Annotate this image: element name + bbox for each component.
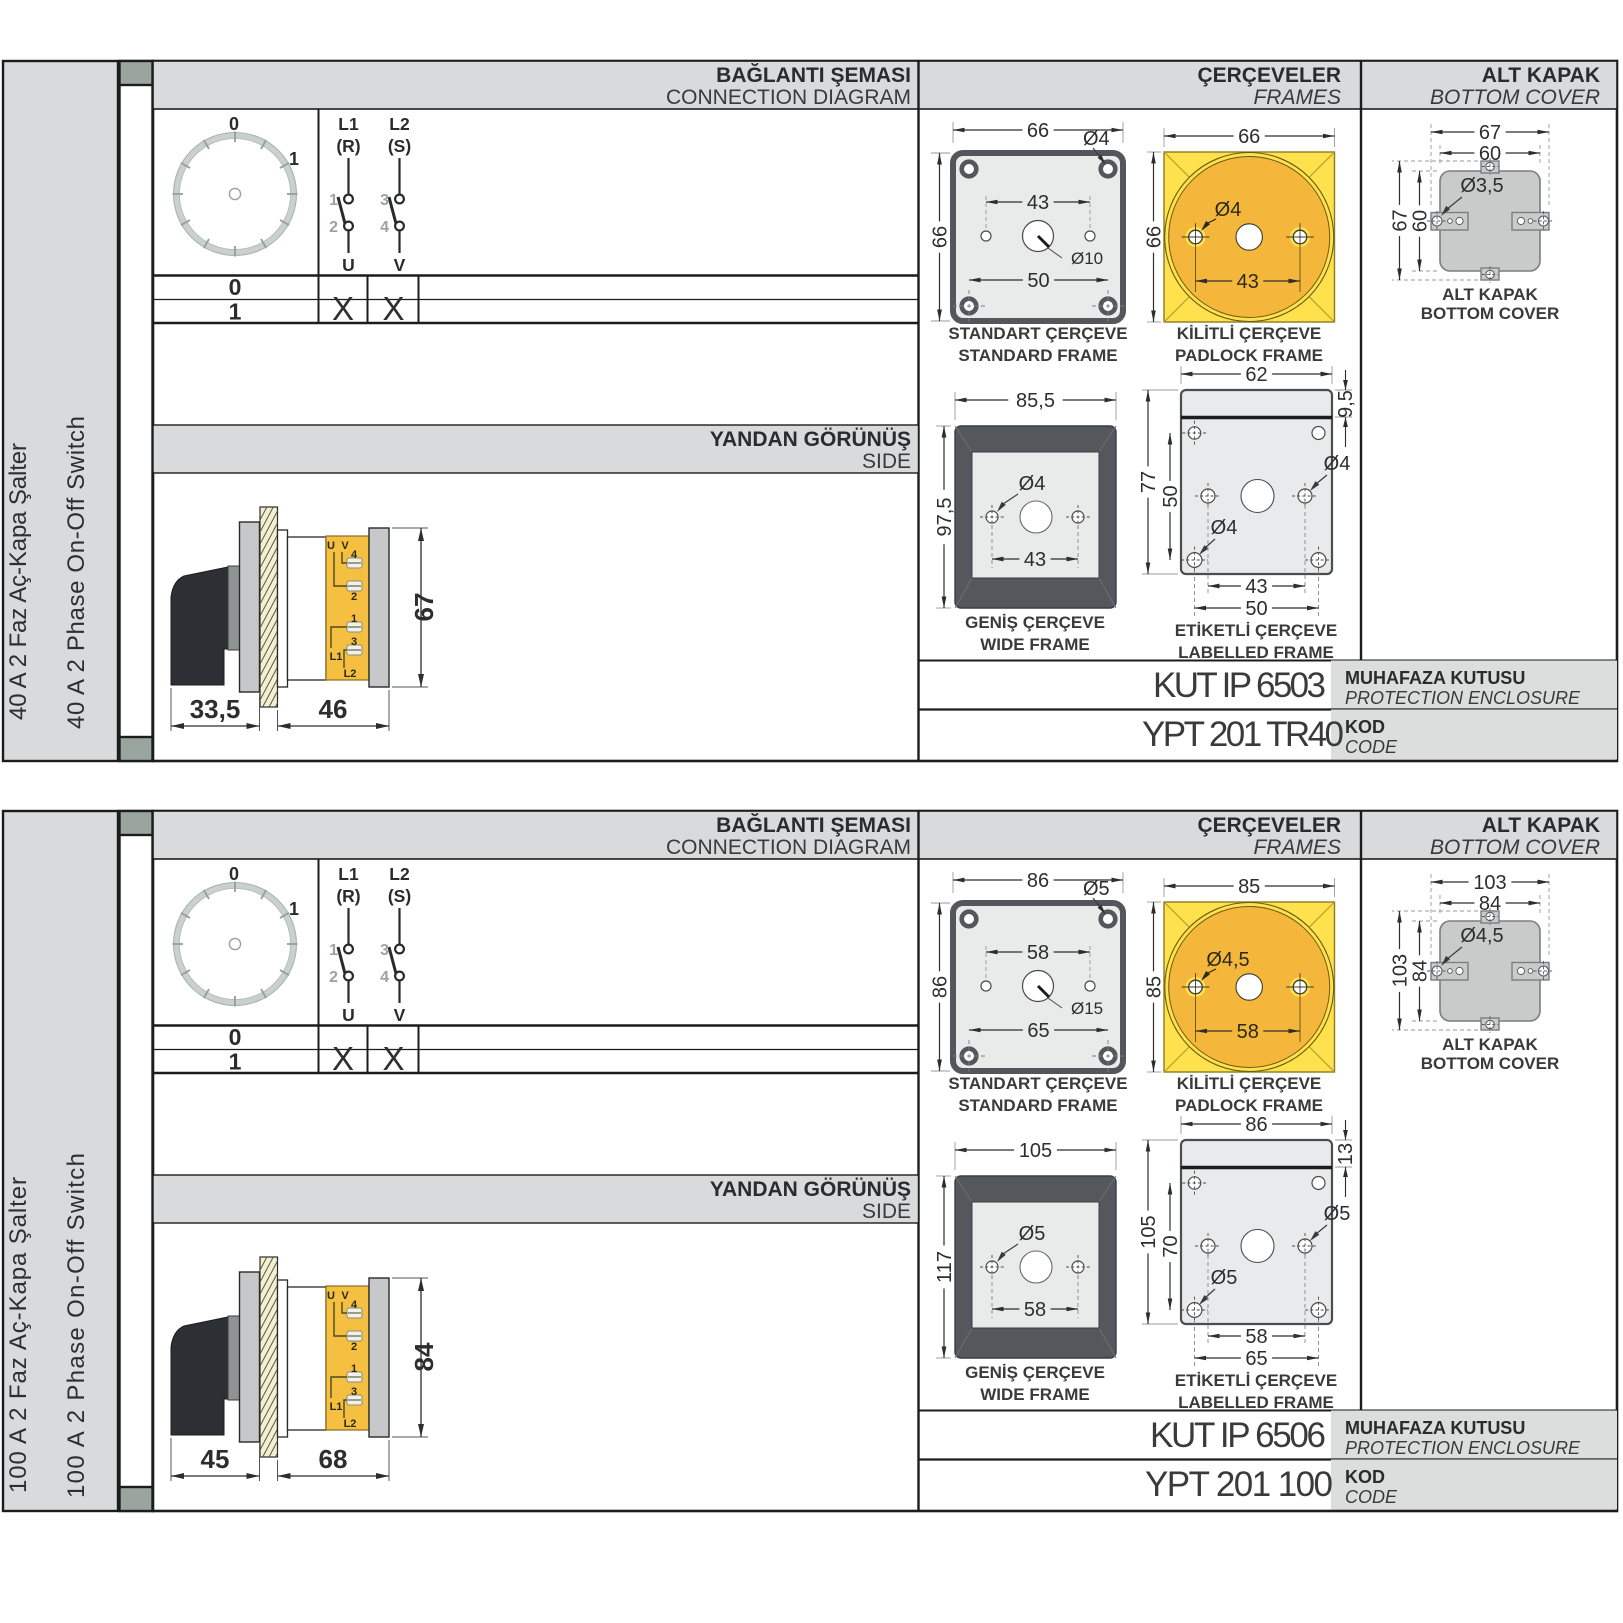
svg-text:58: 58 <box>1245 1326 1267 1348</box>
svg-text:3: 3 <box>380 942 389 959</box>
svg-text:103: 103 <box>1473 872 1506 894</box>
svg-text:40 A 2 Faz Aç-Kapa Şalter: 40 A 2 Faz Aç-Kapa Şalter <box>5 443 32 720</box>
svg-text:L1: L1 <box>330 651 343 663</box>
svg-text:ÇERÇEVELER: ÇERÇEVELER <box>1197 64 1341 87</box>
svg-text:50: 50 <box>1245 598 1267 620</box>
svg-text:MUHAFAZA KUTUSU: MUHAFAZA KUTUSU <box>1345 668 1525 688</box>
svg-text:KİLİTLİ ÇERÇEVE: KİLİTLİ ÇERÇEVE <box>1177 1074 1322 1093</box>
svg-text:3: 3 <box>351 1386 357 1398</box>
svg-text:X: X <box>382 1040 404 1077</box>
svg-text:CONNECTION DIAGRAM: CONNECTION DIAGRAM <box>666 836 911 859</box>
svg-text:43: 43 <box>1245 576 1267 598</box>
svg-text:43: 43 <box>1237 271 1259 293</box>
svg-text:68: 68 <box>319 1444 348 1474</box>
svg-text:2: 2 <box>329 969 338 986</box>
svg-text:66: 66 <box>1144 226 1166 248</box>
svg-text:BAĞLANTI ŞEMASI: BAĞLANTI ŞEMASI <box>716 813 911 837</box>
svg-text:KOD: KOD <box>1345 717 1385 737</box>
svg-text:BOTTOM COVER: BOTTOM COVER <box>1421 1054 1560 1073</box>
svg-text:WIDE FRAME: WIDE FRAME <box>980 635 1090 654</box>
svg-text:V: V <box>341 540 349 552</box>
svg-text:ÇERÇEVELER: ÇERÇEVELER <box>1197 814 1341 837</box>
svg-text:CODE: CODE <box>1345 737 1398 757</box>
svg-text:Ø3,5: Ø3,5 <box>1460 175 1503 197</box>
svg-text:100 A 2 Faz Aç-Kapa Şalter: 100 A 2 Faz Aç-Kapa Şalter <box>5 1177 32 1493</box>
svg-text:77: 77 <box>1138 471 1160 493</box>
svg-text:(R): (R) <box>336 136 360 156</box>
svg-text:STANDART ÇERÇEVE: STANDART ÇERÇEVE <box>948 324 1127 343</box>
svg-text:STANDART ÇERÇEVE: STANDART ÇERÇEVE <box>948 1074 1127 1093</box>
svg-text:97,5: 97,5 <box>934 498 956 537</box>
svg-text:60: 60 <box>1410 210 1432 232</box>
svg-text:ETİKETLİ ÇERÇEVE: ETİKETLİ ÇERÇEVE <box>1175 621 1337 640</box>
svg-text:0: 0 <box>229 274 242 300</box>
svg-text:46: 46 <box>319 694 348 724</box>
svg-text:9,5: 9,5 <box>1335 390 1357 418</box>
svg-text:L1: L1 <box>338 114 359 134</box>
svg-text:KUT IP 6503: KUT IP 6503 <box>1153 666 1326 705</box>
svg-text:85: 85 <box>1144 976 1166 998</box>
svg-text:43: 43 <box>1027 192 1049 214</box>
svg-text:GENİŞ ÇERÇEVE: GENİŞ ÇERÇEVE <box>965 1363 1105 1382</box>
svg-text:84: 84 <box>1410 960 1432 982</box>
svg-text:117: 117 <box>934 1251 956 1283</box>
svg-text:Ø4: Ø4 <box>1019 473 1046 495</box>
svg-text:L2: L2 <box>344 668 357 680</box>
svg-text:0: 0 <box>229 114 239 134</box>
svg-text:U: U <box>327 540 335 552</box>
svg-text:Ø5: Ø5 <box>1019 1223 1046 1245</box>
svg-text:YANDAN GÖRÜNÜŞ: YANDAN GÖRÜNÜŞ <box>710 428 911 451</box>
svg-text:L2: L2 <box>344 1418 357 1430</box>
svg-text:BOTTOM COVER: BOTTOM COVER <box>1430 836 1600 859</box>
svg-text:4: 4 <box>380 219 389 236</box>
svg-text:4: 4 <box>380 969 389 986</box>
svg-text:1: 1 <box>351 1363 357 1375</box>
svg-text:ETİKETLİ ÇERÇEVE: ETİKETLİ ÇERÇEVE <box>1175 1371 1337 1390</box>
svg-text:L1: L1 <box>330 1401 343 1413</box>
svg-text:Ø4,5: Ø4,5 <box>1460 925 1503 947</box>
svg-text:STANDARD FRAME: STANDARD FRAME <box>958 346 1117 365</box>
svg-text:L2: L2 <box>389 114 410 134</box>
svg-text:LABELLED FRAME: LABELLED FRAME <box>1178 1393 1334 1412</box>
svg-text:GENİŞ ÇERÇEVE: GENİŞ ÇERÇEVE <box>965 613 1105 632</box>
svg-text:1: 1 <box>229 1049 242 1075</box>
svg-text:70: 70 <box>1160 1235 1182 1257</box>
svg-text:84: 84 <box>1479 893 1501 915</box>
svg-text:33,5: 33,5 <box>190 694 241 724</box>
svg-text:U: U <box>342 255 355 275</box>
svg-text:Ø15: Ø15 <box>1071 999 1103 1018</box>
svg-text:2: 2 <box>351 1341 357 1353</box>
svg-text:58: 58 <box>1237 1021 1259 1043</box>
svg-text:PROTECTION ENCLOSURE: PROTECTION ENCLOSURE <box>1345 688 1581 708</box>
svg-text:1: 1 <box>289 149 299 169</box>
svg-text:FRAMES: FRAMES <box>1253 836 1341 859</box>
svg-text:86: 86 <box>930 976 952 998</box>
svg-text:X: X <box>332 1040 354 1077</box>
svg-text:U: U <box>327 1290 335 1302</box>
svg-text:Ø5: Ø5 <box>1083 878 1110 900</box>
svg-text:ALT KAPAK: ALT KAPAK <box>1482 64 1600 87</box>
svg-text:Ø4: Ø4 <box>1211 517 1238 539</box>
svg-text:86: 86 <box>1027 870 1049 892</box>
svg-text:58: 58 <box>1027 942 1049 964</box>
svg-text:PROTECTION ENCLOSURE: PROTECTION ENCLOSURE <box>1345 1438 1581 1458</box>
svg-text:Ø5: Ø5 <box>1324 1203 1351 1225</box>
svg-text:3: 3 <box>380 192 389 209</box>
svg-text:(S): (S) <box>388 136 411 156</box>
svg-text:2: 2 <box>351 591 357 603</box>
svg-text:62: 62 <box>1245 364 1267 386</box>
svg-text:65: 65 <box>1245 1348 1267 1370</box>
svg-text:Ø4,5: Ø4,5 <box>1206 949 1249 971</box>
svg-text:KUT IP 6506: KUT IP 6506 <box>1150 1416 1326 1455</box>
svg-text:66: 66 <box>930 226 952 248</box>
svg-text:(R): (R) <box>336 886 360 906</box>
svg-text:ALT KAPAK: ALT KAPAK <box>1442 1035 1538 1054</box>
svg-text:BOTTOM COVER: BOTTOM COVER <box>1430 86 1600 109</box>
svg-text:Ø5: Ø5 <box>1211 1267 1238 1289</box>
svg-text:50: 50 <box>1027 270 1049 292</box>
svg-text:86: 86 <box>1245 1114 1267 1136</box>
svg-text:PADLOCK FRAME: PADLOCK FRAME <box>1175 1096 1323 1115</box>
svg-text:V: V <box>394 1005 406 1025</box>
svg-text:LABELLED FRAME: LABELLED FRAME <box>1178 643 1334 662</box>
svg-text:ALT KAPAK: ALT KAPAK <box>1442 285 1538 304</box>
svg-text:100 A 2 Phase On-Off Switch: 100 A 2 Phase On-Off Switch <box>63 1153 90 1498</box>
svg-text:YANDAN GÖRÜNÜŞ: YANDAN GÖRÜNÜŞ <box>710 1178 911 1201</box>
svg-text:67: 67 <box>1390 209 1412 231</box>
svg-text:KOD: KOD <box>1345 1467 1385 1487</box>
svg-text:L1: L1 <box>338 864 359 884</box>
svg-text:66: 66 <box>1238 126 1260 148</box>
svg-text:85,5: 85,5 <box>1016 390 1055 412</box>
svg-text:40 A 2 Phase On-Off Switch: 40 A 2 Phase On-Off Switch <box>63 416 90 729</box>
svg-text:60: 60 <box>1479 143 1501 165</box>
svg-text:85: 85 <box>1238 876 1260 898</box>
svg-text:2: 2 <box>329 219 338 236</box>
svg-text:MUHAFAZA KUTUSU: MUHAFAZA KUTUSU <box>1345 1418 1525 1438</box>
svg-text:KİLİTLİ ÇERÇEVE: KİLİTLİ ÇERÇEVE <box>1177 324 1322 343</box>
svg-text:67: 67 <box>409 593 439 622</box>
svg-text:X: X <box>332 290 354 327</box>
svg-text:FRAMES: FRAMES <box>1253 86 1341 109</box>
svg-text:58: 58 <box>1024 1299 1046 1321</box>
svg-text:(S): (S) <box>388 886 411 906</box>
svg-text:67: 67 <box>1479 122 1501 144</box>
svg-text:X: X <box>382 290 404 327</box>
svg-text:105: 105 <box>1019 1140 1052 1162</box>
svg-text:Ø4: Ø4 <box>1324 453 1351 475</box>
svg-text:BOTTOM COVER: BOTTOM COVER <box>1421 304 1560 323</box>
svg-text:45: 45 <box>201 1444 230 1474</box>
svg-text:103: 103 <box>1390 954 1412 987</box>
svg-text:YPT 201 TR40: YPT 201 TR40 <box>1142 715 1344 754</box>
svg-text:Ø10: Ø10 <box>1071 249 1103 268</box>
svg-text:84: 84 <box>409 1342 439 1371</box>
svg-text:V: V <box>394 255 406 275</box>
svg-text:CONNECTION DIAGRAM: CONNECTION DIAGRAM <box>666 86 911 109</box>
svg-text:1: 1 <box>351 613 357 625</box>
svg-text:YPT 201 100: YPT 201 100 <box>1145 1465 1333 1504</box>
svg-text:105: 105 <box>1138 1215 1160 1248</box>
svg-text:3: 3 <box>351 636 357 648</box>
svg-text:U: U <box>342 1005 355 1025</box>
svg-text:STANDARD FRAME: STANDARD FRAME <box>958 1096 1117 1115</box>
svg-text:BAĞLANTI ŞEMASI: BAĞLANTI ŞEMASI <box>716 63 911 87</box>
svg-text:SIDE: SIDE <box>862 450 911 473</box>
svg-text:ALT KAPAK: ALT KAPAK <box>1482 814 1600 837</box>
svg-text:SIDE: SIDE <box>862 1200 911 1223</box>
svg-text:Ø4: Ø4 <box>1083 128 1110 150</box>
svg-text:1: 1 <box>329 942 338 959</box>
svg-text:4: 4 <box>351 549 358 561</box>
svg-text:CODE: CODE <box>1345 1487 1398 1507</box>
svg-text:1: 1 <box>229 299 242 325</box>
svg-text:50: 50 <box>1160 485 1182 507</box>
svg-text:1: 1 <box>289 899 299 919</box>
svg-text:Ø4: Ø4 <box>1215 199 1242 221</box>
svg-text:0: 0 <box>229 1024 242 1050</box>
svg-text:65: 65 <box>1027 1020 1049 1042</box>
svg-text:4: 4 <box>351 1299 358 1311</box>
svg-text:L2: L2 <box>389 864 410 884</box>
svg-text:WIDE FRAME: WIDE FRAME <box>980 1385 1090 1404</box>
svg-text:V: V <box>341 1290 349 1302</box>
svg-text:PADLOCK FRAME: PADLOCK FRAME <box>1175 346 1323 365</box>
svg-text:66: 66 <box>1027 120 1049 142</box>
svg-text:0: 0 <box>229 864 239 884</box>
svg-text:1: 1 <box>329 192 338 209</box>
svg-text:43: 43 <box>1024 549 1046 571</box>
svg-text:13: 13 <box>1335 1143 1357 1165</box>
